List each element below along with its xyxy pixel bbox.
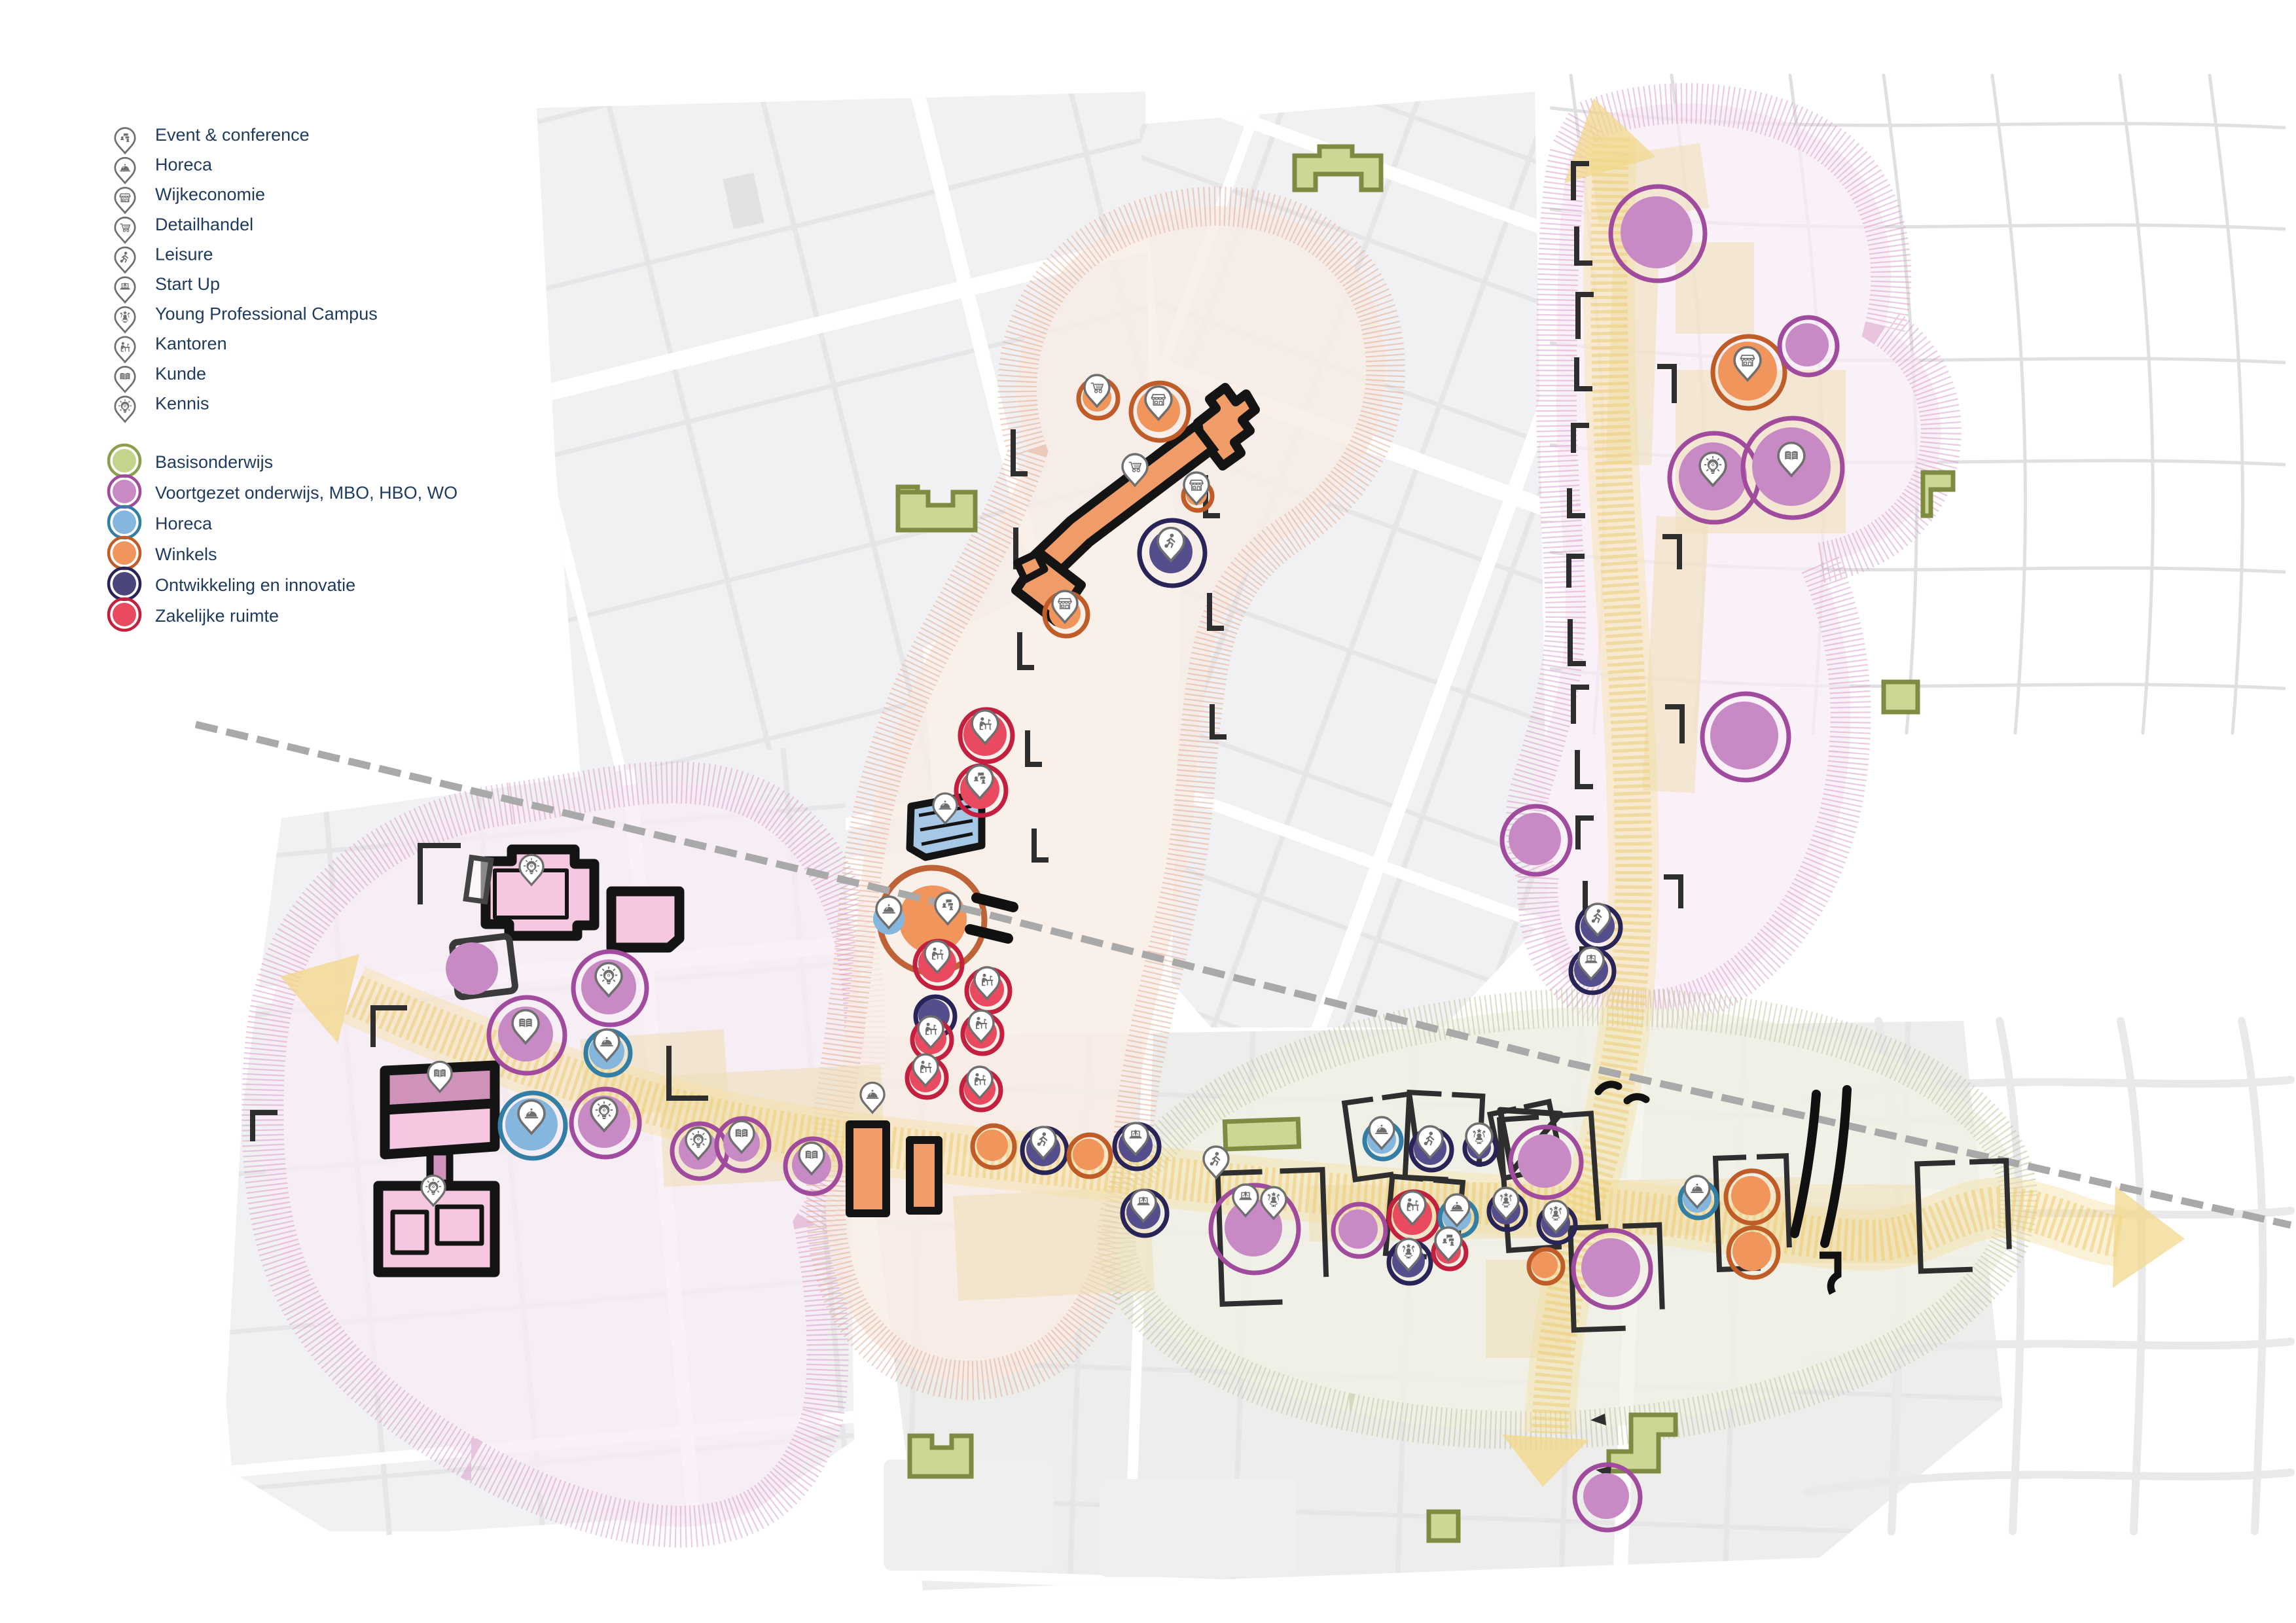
svg-text:Ontwikkeling en innovatie: Ontwikkeling en innovatie — [155, 575, 355, 595]
svg-text:Voortgezet onderwijs, MBO, HBO: Voortgezet onderwijs, MBO, HBO, WO — [155, 483, 457, 503]
svg-text:Leisure: Leisure — [155, 244, 213, 264]
svg-text:Start Up: Start Up — [155, 274, 220, 294]
svg-text:Detailhandel: Detailhandel — [155, 215, 253, 234]
svg-text:Winkels: Winkels — [155, 544, 217, 564]
svg-text:Horeca: Horeca — [155, 155, 213, 175]
svg-text:Horeca: Horeca — [155, 514, 213, 533]
svg-text:Kunde: Kunde — [155, 364, 206, 383]
svg-text:Basisonderwijs: Basisonderwijs — [155, 452, 273, 472]
svg-text:Event & conference: Event & conference — [155, 125, 310, 145]
svg-text:Zakelijke ruimte: Zakelijke ruimte — [155, 606, 279, 626]
svg-text:Kennis: Kennis — [155, 393, 209, 413]
svg-text:Kantoren: Kantoren — [155, 334, 227, 353]
svg-text:Wijkeconomie: Wijkeconomie — [155, 185, 265, 204]
svg-text:Young Professional Campus: Young Professional Campus — [155, 304, 378, 324]
